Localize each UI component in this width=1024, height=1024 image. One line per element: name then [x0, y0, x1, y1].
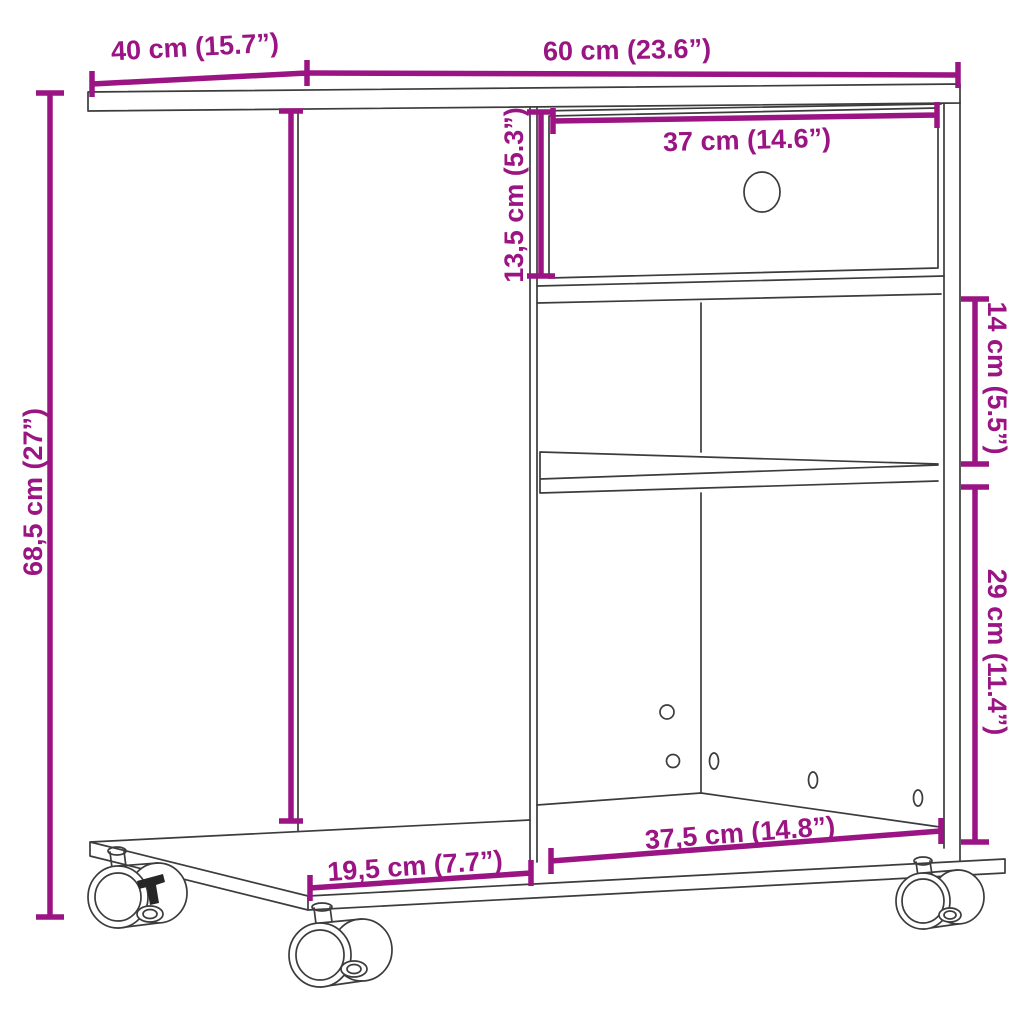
- caster-right: [896, 857, 984, 929]
- caster-hub: [137, 906, 163, 922]
- screw-holes: [660, 705, 923, 806]
- dimension-drawer-width-label: 37 cm (14.6”): [663, 123, 832, 157]
- under-drawer-panel: [537, 276, 944, 303]
- dimension-overall-height-label: 68,5 cm (27”): [18, 408, 48, 576]
- dimension-drawer-height-label: 13,5 cm (5.3”): [499, 107, 529, 283]
- dimension-top-depth-label: 40 cm (15.7”): [110, 28, 279, 67]
- caster-front: [289, 903, 392, 987]
- screw-hole: [809, 772, 818, 788]
- dimension-lower-compartment: 29 cm (11.4”): [961, 487, 1012, 842]
- dimension-line: [279, 111, 303, 821]
- tabletop: [88, 84, 960, 111]
- dimension-overall-height: 68,5 cm (27”): [18, 93, 64, 917]
- middle-shelf: [540, 452, 938, 493]
- screw-hole: [914, 790, 923, 806]
- dimension-drawer-height: 13,5 cm (5.3”): [499, 107, 555, 283]
- screw-hole: [667, 755, 680, 768]
- product-dimension-diagram: 40 cm (15.7”) 60 cm (23.6”) 37 cm (14.6”…: [0, 0, 1024, 1024]
- caster-hub: [939, 908, 961, 922]
- screw-hole: [710, 753, 719, 769]
- dimension-lower-compartment-label: 29 cm (11.4”): [982, 569, 1012, 736]
- furniture-outline: [88, 84, 1005, 987]
- dimension-base-side-depth: 19,5 cm (7.7”): [310, 845, 531, 901]
- dimension-top-width: 60 cm (23.6”): [307, 34, 958, 88]
- dimension-base-front-width: 37,5 cm (14.8”): [551, 811, 941, 874]
- caster-wheel-front: [289, 923, 351, 987]
- dimension-inner-height: [279, 111, 303, 821]
- dimension-base-side-depth-label: 19,5 cm (7.7”): [326, 845, 503, 887]
- screw-hole: [660, 705, 674, 719]
- dimension-middle-shelf-gap: 14 cm (5.5”): [961, 299, 1012, 464]
- dimension-middle-shelf-gap-label: 14 cm (5.5”): [982, 301, 1012, 454]
- dimension-top-depth: 40 cm (15.7”): [92, 28, 307, 97]
- base-platform: [90, 820, 1005, 910]
- caster-hub: [341, 961, 367, 977]
- dimension-top-width-label: 60 cm (23.6”): [543, 34, 712, 67]
